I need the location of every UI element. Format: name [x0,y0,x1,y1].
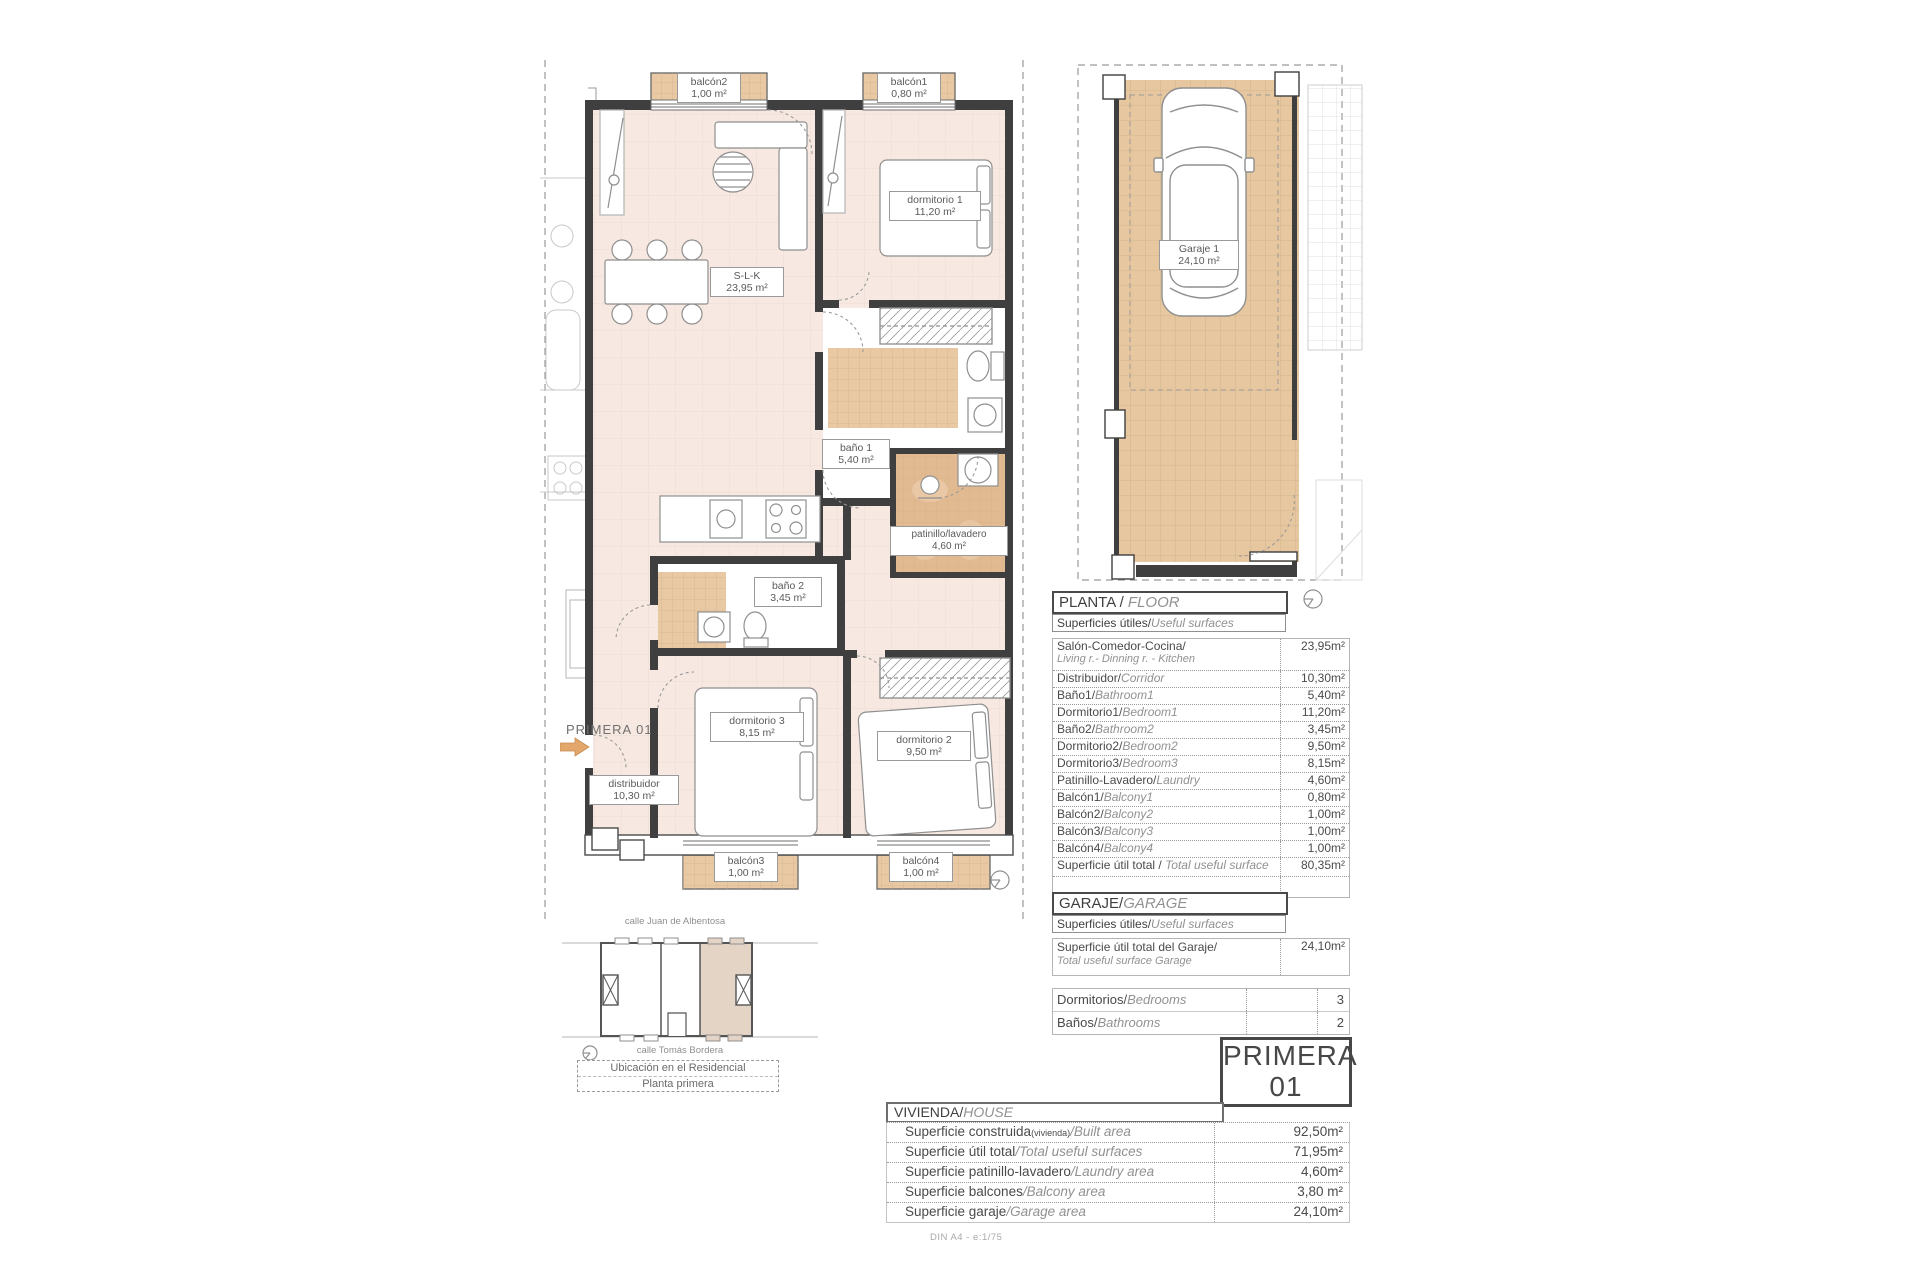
table-row: Superficie útil total del Garaje/Total u… [1053,939,1349,975]
table-row: Dormitorio3/Bedroom3 8,15m² [1053,755,1349,772]
garage-section-subheader: Superficies útiles/Useful surfaces [1052,915,1286,933]
table-row: Distribuidor/Corridor 10,30m² [1053,670,1349,687]
table-row: Superficie construida(vivienda)/Built ar… [887,1123,1349,1142]
floor-section-header: PLANTA / FLOOR [1052,591,1288,614]
room-label-dormitorio2: dormitorio 2 9,50 m² [877,731,971,761]
location-caption-box: Ubicación en el Residencial Planta prime… [577,1060,779,1092]
counts-table: Dormitorios/Bedrooms 3 Baños/Bathrooms 2 [1052,988,1350,1035]
table-row: Dormitorios/Bedrooms 3 [1053,989,1349,1011]
floor-surfaces-table: Salón-Comedor-Cocina/Living r.- Dinning … [1052,638,1350,898]
table-row: Balcón4/Balcony4 1,00m² [1053,840,1349,857]
garage-drawing [1070,60,1370,620]
section-mark-icon [1304,590,1322,608]
table-row: Baños/Bathrooms 2 [1053,1011,1349,1034]
garage-section-header: GARAJE/GARAGE [1052,892,1288,915]
table-total-row: Superficie útil total / Total useful sur… [1053,857,1349,876]
room-label-balcon2: balcón2 1,00 m² [677,73,741,103]
table-row: Superficie balcones/Balcony area 3,80 m² [887,1182,1349,1202]
plan-sheet: balcón2 1,00 m² balcón1 0,80 m² dormitor… [0,0,1920,1280]
entrance-arrow-icon [560,737,590,757]
room-label-balcon4: balcón4 1,00 m² [889,852,953,882]
table-row: Baño2/Bathroom2 3,45m² [1053,721,1349,738]
table-row: Baño1/Bathroom1 5,40m² [1053,687,1349,704]
table-row: Patinillo-Lavadero/Laundry 4,60m² [1053,772,1349,789]
garage-surfaces-table: Superficie útil total del Garaje/Total u… [1052,938,1350,976]
floor-section-subheader: Superficies útiles/Useful surfaces [1052,614,1286,632]
table-row: Dormitorio2/Bedroom2 9,50m² [1053,738,1349,755]
house-surfaces-table: Superficie construida(vivienda)/Built ar… [886,1122,1350,1223]
room-label-balcon1: balcón1 0,80 m² [877,73,941,103]
table-row: Superficie patinillo-lavadero/Laundry ar… [887,1162,1349,1182]
room-label-balcon3: balcón3 1,00 m² [714,852,778,882]
room-label-dormitorio1: dormitorio 1 11,20 m² [889,191,981,221]
house-section-header: VIVIENDA/HOUSE [886,1102,1224,1123]
unit-entrance-label: PRIMERA 01 [566,722,653,737]
table-row: Dormitorio1/Bedroom1 11,20m² [1053,704,1349,721]
table-row: Superficie útil total/Total useful surfa… [887,1142,1349,1162]
room-label-garaje1: Garaje 1 24,10 m² [1159,240,1239,270]
room-label-patinillo: patinillo/lavadero 4,60 m² [890,526,1008,556]
scale-note: DIN A4 - e:1/75 [930,1232,1002,1243]
unit-badge: PRIMERA 01 [1220,1037,1352,1107]
table-row: Superficie garaje/Garage area 24,10m² [887,1202,1349,1222]
room-label-slk: S-L-K 23,95 m² [710,267,784,297]
table-row: Balcón3/Balcony3 1,00m² [1053,823,1349,840]
street-label-bottom: calle Tomás Bordera [595,1045,765,1056]
table-row: Salón-Comedor-Cocina/Living r.- Dinning … [1053,639,1349,670]
street-label-top: calle Juan de Albentosa [580,916,770,927]
room-label-bano1: baño 1 5,40 m² [822,439,890,469]
table-row: Balcón1/Balcony1 0,80m² [1053,789,1349,806]
room-label-dormitorio3: dormitorio 3 8,15 m² [710,712,804,742]
table-row: Balcón2/Balcony2 1,00m² [1053,806,1349,823]
room-label-distribuidor: distribuidor 10,30 m² [589,775,679,805]
room-label-bano2: baño 2 3,45 m² [754,577,822,607]
car-icon [1154,88,1254,316]
section-mark-icon [991,871,1009,889]
